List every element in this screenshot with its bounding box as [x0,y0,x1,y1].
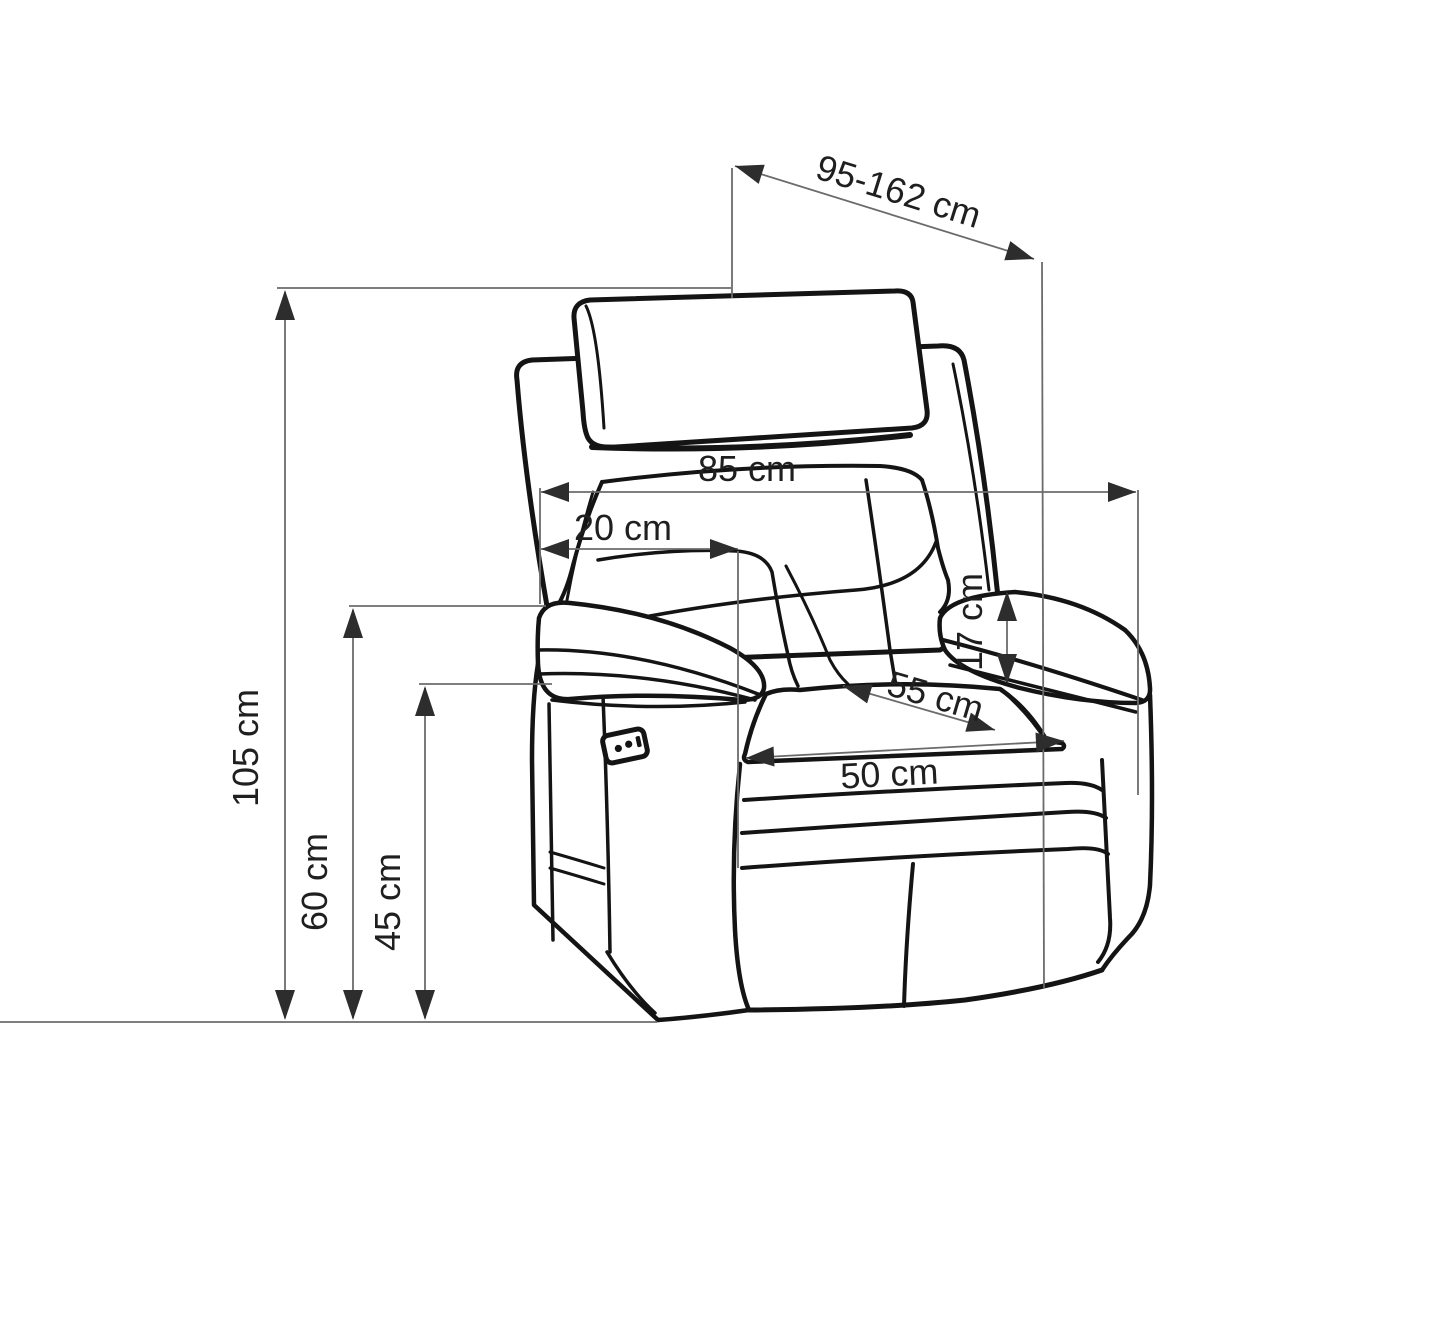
dim-armrest-above-seat: 17 cm [949,573,1017,684]
dim-armrest-height-arrow-down-icon [343,990,363,1020]
dim-back-width-label: 85 cm [698,448,796,489]
power-control-panel[interactable] [602,728,649,764]
dim-depth-ext-right [1042,262,1044,988]
dim-armrest-height-arrow-up-icon [343,608,363,638]
dim-seat-width-label: 50 cm [839,750,939,796]
recliner-diagram-svg: 105 cm 60 cm 45 cm 95-162 cm 85 cm [0,0,1445,1339]
dim-total-height-arrow-down-icon [275,990,295,1020]
dim-seat-height-arrow-down-icon [415,990,435,1020]
dim-back-width-arrow-right-icon [1108,482,1136,502]
left-armrest-bottom-lip [552,700,745,707]
dim-armrest-above-seat-label: 17 cm [949,573,990,671]
pocket-left-seam [549,704,553,940]
dim-depth-arrow-start-icon [735,165,765,184]
dim-total-height-arrow-up-icon [275,290,295,320]
dim-total-height-label: 105 cm [225,689,266,807]
dim-depth-arrow-end-icon [1004,241,1034,260]
headrest-cushion [574,291,927,447]
chair-bottom-edge [749,970,1102,1010]
chair-bottom-left-edge [658,1010,749,1020]
pocket-band-top [550,852,604,868]
dim-seat-height: 45 cm [367,684,552,1020]
footrest-center-seam [904,864,913,1006]
dimension-diagram: 105 cm 60 cm 45 cm 95-162 cm 85 cm [0,0,1445,1339]
dim-back-side-label: 20 cm [574,507,672,548]
dim-armrest-height-label: 60 cm [294,833,335,931]
footrest-top-seam [742,812,1106,833]
dim-armrest-height: 60 cm [294,606,546,1020]
dim-seat-height-arrow-up-icon [415,686,435,716]
footrest-second-seam [742,848,1108,868]
dim-seat-height-label: 45 cm [367,853,408,951]
pocket-band-bottom [550,868,604,884]
left-side-fold-seam [607,952,655,1013]
dim-depth-label: 95-162 cm [811,146,986,236]
recliner-drawing [517,291,1152,1020]
